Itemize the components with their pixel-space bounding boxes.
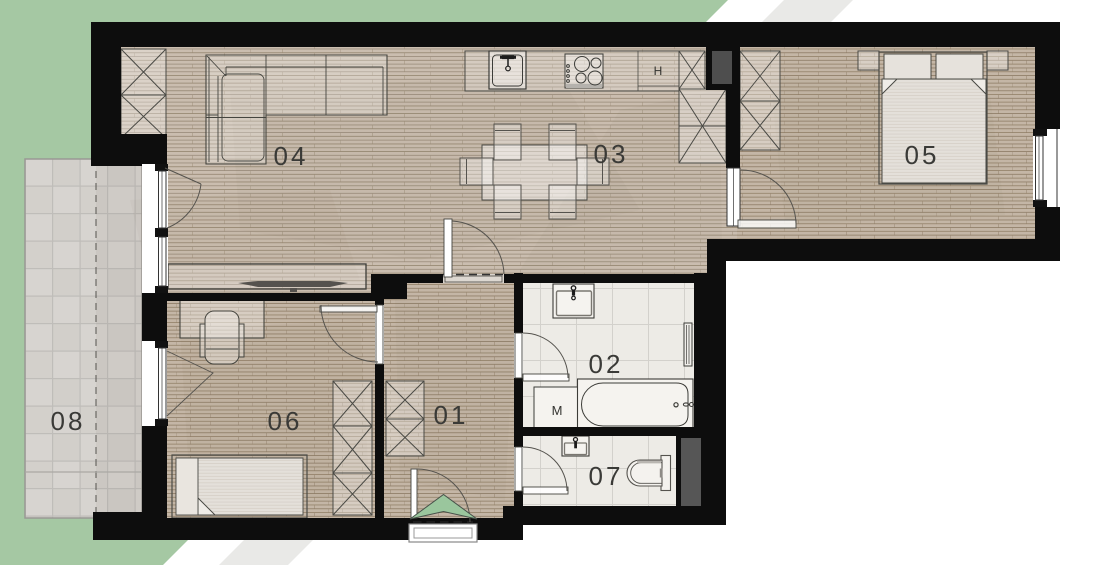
svg-text:08: 08 [51,406,86,436]
svg-text:H: H [654,64,663,78]
svg-text:06: 06 [268,406,303,436]
svg-text:05: 05 [905,140,940,170]
svg-text:M: M [552,403,563,418]
svg-text:04: 04 [274,141,309,171]
svg-text:01: 01 [434,400,469,430]
svg-text:07: 07 [589,461,624,491]
svg-text:02: 02 [589,349,624,379]
svg-text:03: 03 [594,139,629,169]
